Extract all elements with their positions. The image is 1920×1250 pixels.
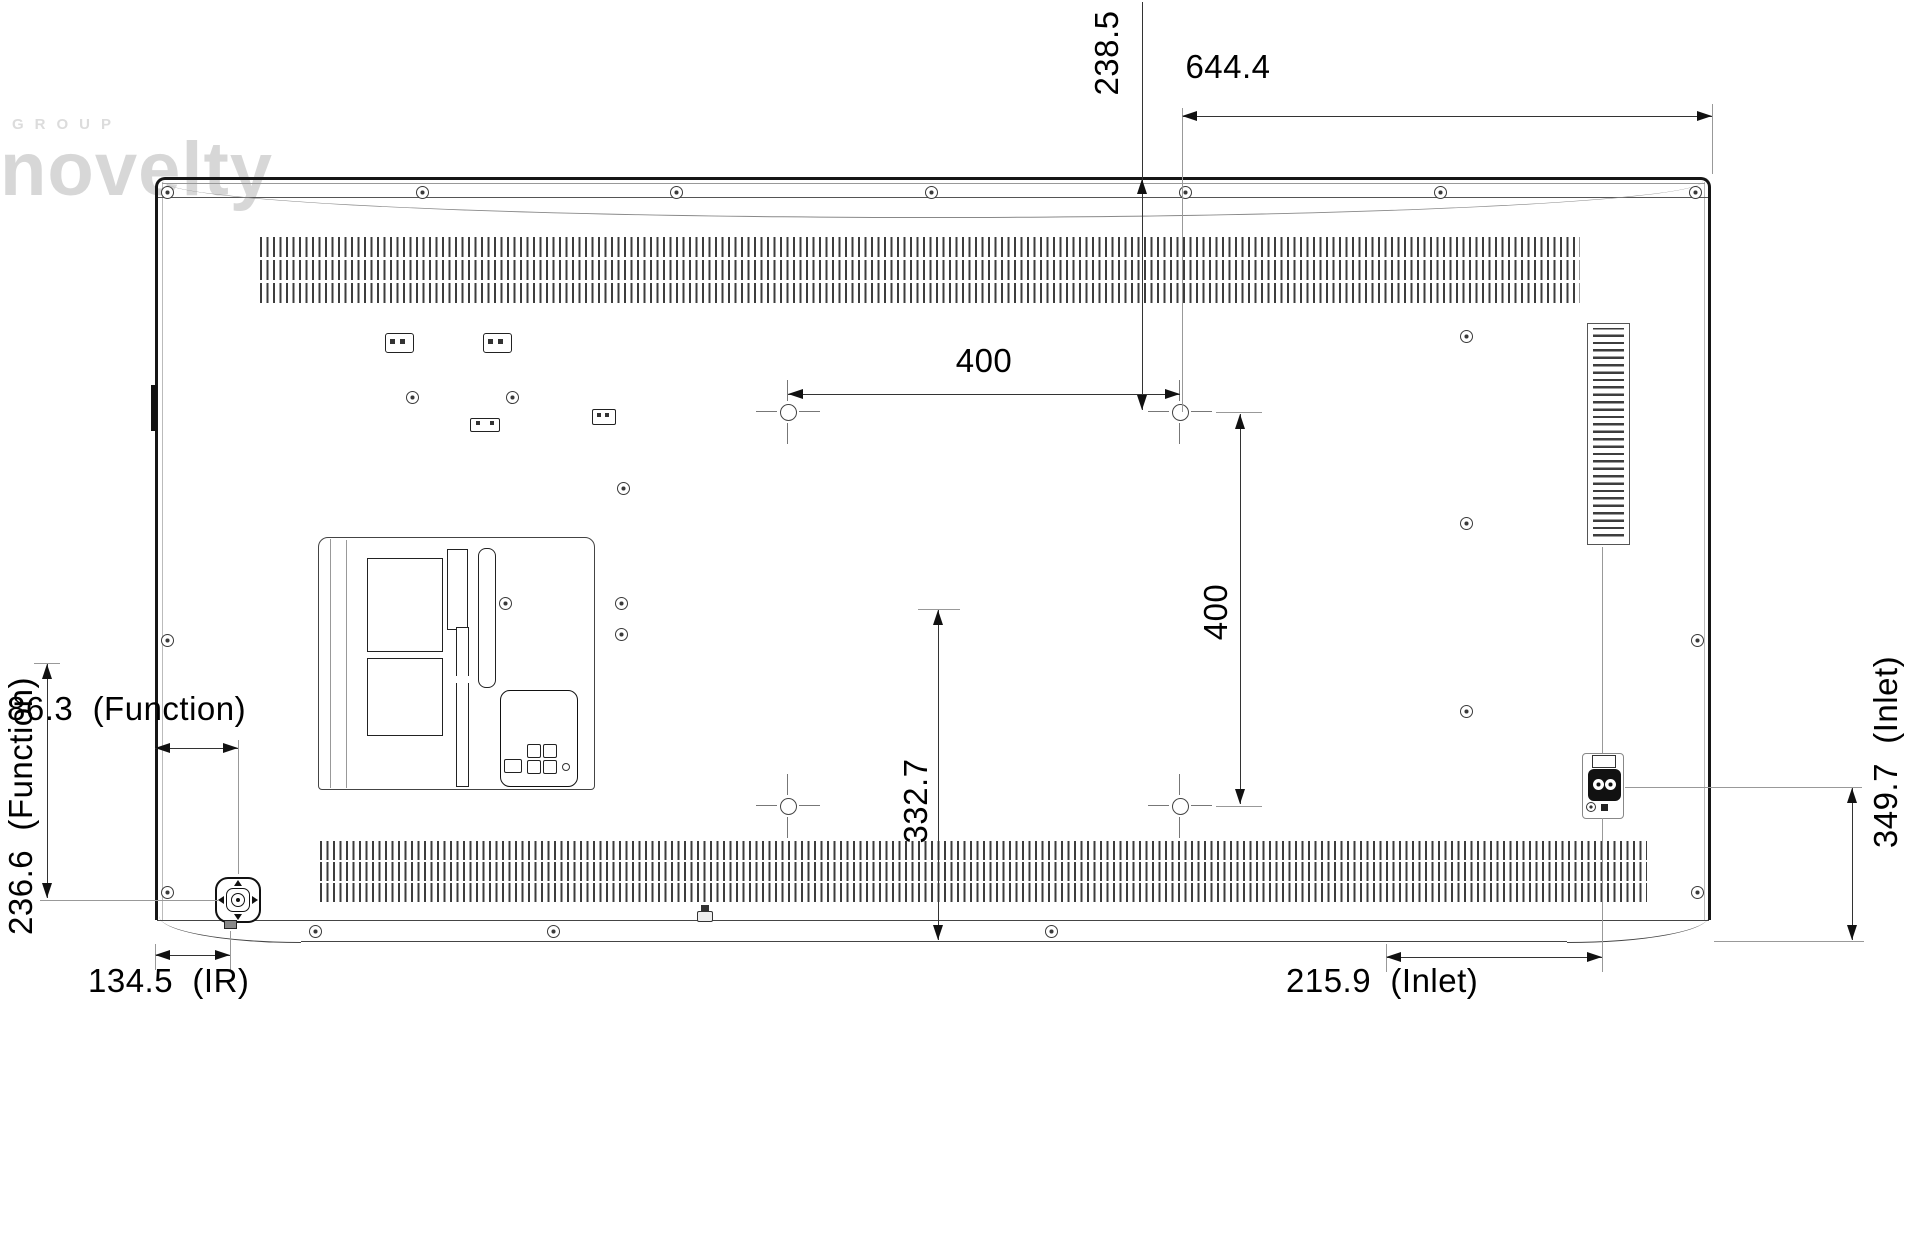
recess-inner-wall [346, 540, 347, 788]
power-inlet-pin [1605, 779, 1616, 790]
dim-215-ext-right [1602, 818, 1603, 972]
cable-clip-hole [488, 339, 493, 344]
dim-349-leader [1625, 787, 1862, 788]
control-key-button [543, 760, 557, 774]
dim-215-line [1386, 957, 1602, 958]
panel-bottom-line [157, 920, 1709, 921]
screw-icon [1460, 517, 1473, 530]
dim-134-arrow-left [155, 950, 170, 960]
power-inlet-label [1592, 755, 1616, 768]
dim-644-line [1182, 116, 1712, 117]
dim-400v-arrow-down [1235, 789, 1245, 804]
port-bracket-lower [456, 627, 469, 787]
dimension-drawing-canvas: GROUP novelty [0, 0, 1920, 1250]
dim-236-label: 236.6 (Function) [2, 677, 40, 935]
dim-400h-arrow-right [1165, 389, 1180, 399]
dim-349-label: 349.7 (Inlet) [1867, 656, 1905, 848]
vesa-hole-ring [780, 404, 797, 421]
dim-86-arrow-right [223, 743, 238, 753]
screw-icon [1689, 186, 1702, 199]
dim-400v-ext-bottom [1216, 806, 1262, 807]
vesa-crosshair-tick [799, 411, 820, 412]
dim-332-arrow-down [933, 925, 943, 940]
screw-icon [416, 186, 429, 199]
vesa-hole-ring [1172, 404, 1189, 421]
panel-bottom-outer-line [301, 941, 1567, 942]
screw-icon [615, 628, 628, 641]
dim-236-ext-bottom [40, 900, 218, 901]
dim-400v-line [1240, 414, 1241, 804]
vesa-hole-ring [1172, 798, 1189, 815]
vesa-crosshair-tick [1191, 411, 1212, 412]
screw-icon [161, 186, 174, 199]
screw-icon [506, 391, 519, 404]
screw-icon [617, 482, 630, 495]
dim-332-line [938, 610, 939, 940]
port-slot-cover [478, 548, 496, 688]
screw-icon [1434, 186, 1447, 199]
power-inlet-screw [1586, 802, 1596, 812]
control-key-slot [504, 759, 522, 773]
dim-134-label: 134.5 (IR) [88, 962, 249, 1000]
vesa-hole-top-right [1148, 380, 1212, 444]
vesa-crosshair-tick [756, 411, 777, 412]
vesa-crosshair-tick [1148, 411, 1169, 412]
top-vent-grille-row [260, 283, 1580, 303]
cable-clip [470, 418, 500, 432]
vesa-crosshair-tick [787, 774, 788, 795]
vesa-crosshair-tick [787, 423, 788, 444]
function-arrow-right-icon [252, 896, 258, 904]
vesa-hole-bottom-right [1148, 774, 1212, 838]
dim-644-label: 644.4 [1172, 48, 1284, 86]
cable-clip-hole [490, 421, 494, 425]
screw-icon [615, 597, 628, 610]
vesa-hole-ring [780, 798, 797, 815]
port-cutout [367, 658, 443, 736]
screw-icon [1179, 186, 1192, 199]
vesa-hole-bottom-left [756, 774, 820, 838]
screw-icon [670, 186, 683, 199]
dim-238-arrow-up [1137, 179, 1147, 194]
dim-349-arrow-down [1847, 925, 1857, 940]
cable-clip [592, 409, 616, 425]
control-key-button [527, 744, 541, 758]
dim-644-arrow-left [1182, 111, 1197, 121]
function-arrow-left-icon [218, 896, 224, 904]
bottom-vent-grille-row [320, 841, 1647, 860]
dim-236-arrow-up [42, 664, 52, 679]
function-arrow-up-icon [234, 880, 242, 886]
screw-icon [309, 925, 322, 938]
ir-sensor [224, 920, 237, 929]
dim-236-arrow-down [42, 883, 52, 898]
dim-644-ext-left [1182, 108, 1183, 412]
vesa-crosshair-tick [1179, 423, 1180, 444]
control-key-button [527, 760, 541, 774]
dim-86-label: 86.3 (Function) [7, 690, 246, 728]
screw-icon [1691, 634, 1704, 647]
panel-inner-edge-left [162, 182, 163, 920]
screw-icon [499, 597, 512, 610]
dim-86-arrow-left [155, 743, 170, 753]
vesa-crosshair-tick [756, 805, 777, 806]
dim-236-line [47, 664, 48, 898]
side-vent-grille [1587, 323, 1630, 545]
vesa-crosshair-tick [787, 817, 788, 838]
cable-clip-hole [498, 339, 503, 344]
port-bracket-upper [447, 549, 468, 630]
dim-400h-line [788, 394, 1180, 395]
power-inlet-pin [1593, 779, 1604, 790]
dim-215-arrow-left [1386, 952, 1401, 962]
recess-inner-wall [330, 539, 331, 788]
side-seam-line [1602, 547, 1603, 753]
dim-238-arrow-down [1137, 395, 1147, 410]
vesa-crosshair-tick [799, 805, 820, 806]
dim-400v-label: 400 [1197, 584, 1235, 641]
bottom-vent-grille-row [320, 883, 1647, 902]
cable-clip-hole [400, 339, 405, 344]
screw-icon [1460, 330, 1473, 343]
dim-400h-label: 400 [934, 342, 1034, 380]
cable-clip-hole [597, 413, 601, 417]
bottom-right-curve [1567, 915, 1709, 943]
top-vent-grille-row [260, 237, 1580, 257]
vesa-crosshair-tick [1148, 805, 1169, 806]
cable-clip-hole [390, 339, 395, 344]
screw-icon [547, 925, 560, 938]
dim-644-ext-right [1712, 104, 1713, 174]
dim-215-arrow-right [1587, 952, 1602, 962]
screw-icon [406, 391, 419, 404]
dim-86-ext [238, 740, 239, 874]
control-key-button [543, 744, 557, 758]
control-key-led [562, 763, 570, 771]
dim-349-line [1852, 788, 1853, 940]
screw-icon [1045, 925, 1058, 938]
dim-400v-arrow-up [1235, 414, 1245, 429]
left-edge-slot [151, 385, 157, 431]
vesa-crosshair-tick [1179, 774, 1180, 795]
bottom-vent-grille-row [320, 862, 1647, 881]
dim-332-arrow-up [933, 610, 943, 625]
dim-644-arrow-right [1697, 111, 1712, 121]
dim-215-label: 215.9 (Inlet) [1286, 962, 1478, 1000]
cable-clip-hole [476, 421, 480, 425]
bracket-break [454, 676, 469, 683]
screw-icon [1460, 705, 1473, 718]
dim-238-line [1142, 2, 1143, 410]
port-cutout [367, 558, 443, 652]
dim-332-label: 332.7 [897, 758, 935, 843]
dim-349-arrow-up [1847, 788, 1857, 803]
dim-400h-arrow-left [788, 389, 803, 399]
dim-400v-ext-top [1216, 412, 1262, 413]
screw-icon [1691, 886, 1704, 899]
top-vent-grille-row [260, 260, 1580, 280]
vesa-crosshair-tick [1179, 817, 1180, 838]
function-button-dot [236, 898, 240, 902]
cable-clip-hole [605, 413, 609, 417]
screw-icon [161, 634, 174, 647]
dim-238-label: 238.5 [1088, 10, 1126, 95]
dim-134-arrow-right [215, 950, 230, 960]
bottom-center-connector-base [697, 911, 713, 922]
screw-icon [161, 886, 174, 899]
dim-349-ext-bottom [1714, 941, 1864, 942]
screw-icon [925, 186, 938, 199]
panel-inner-edge-right [1704, 182, 1705, 920]
vesa-crosshair-tick [1191, 805, 1212, 806]
power-inlet-fuse [1601, 804, 1608, 811]
